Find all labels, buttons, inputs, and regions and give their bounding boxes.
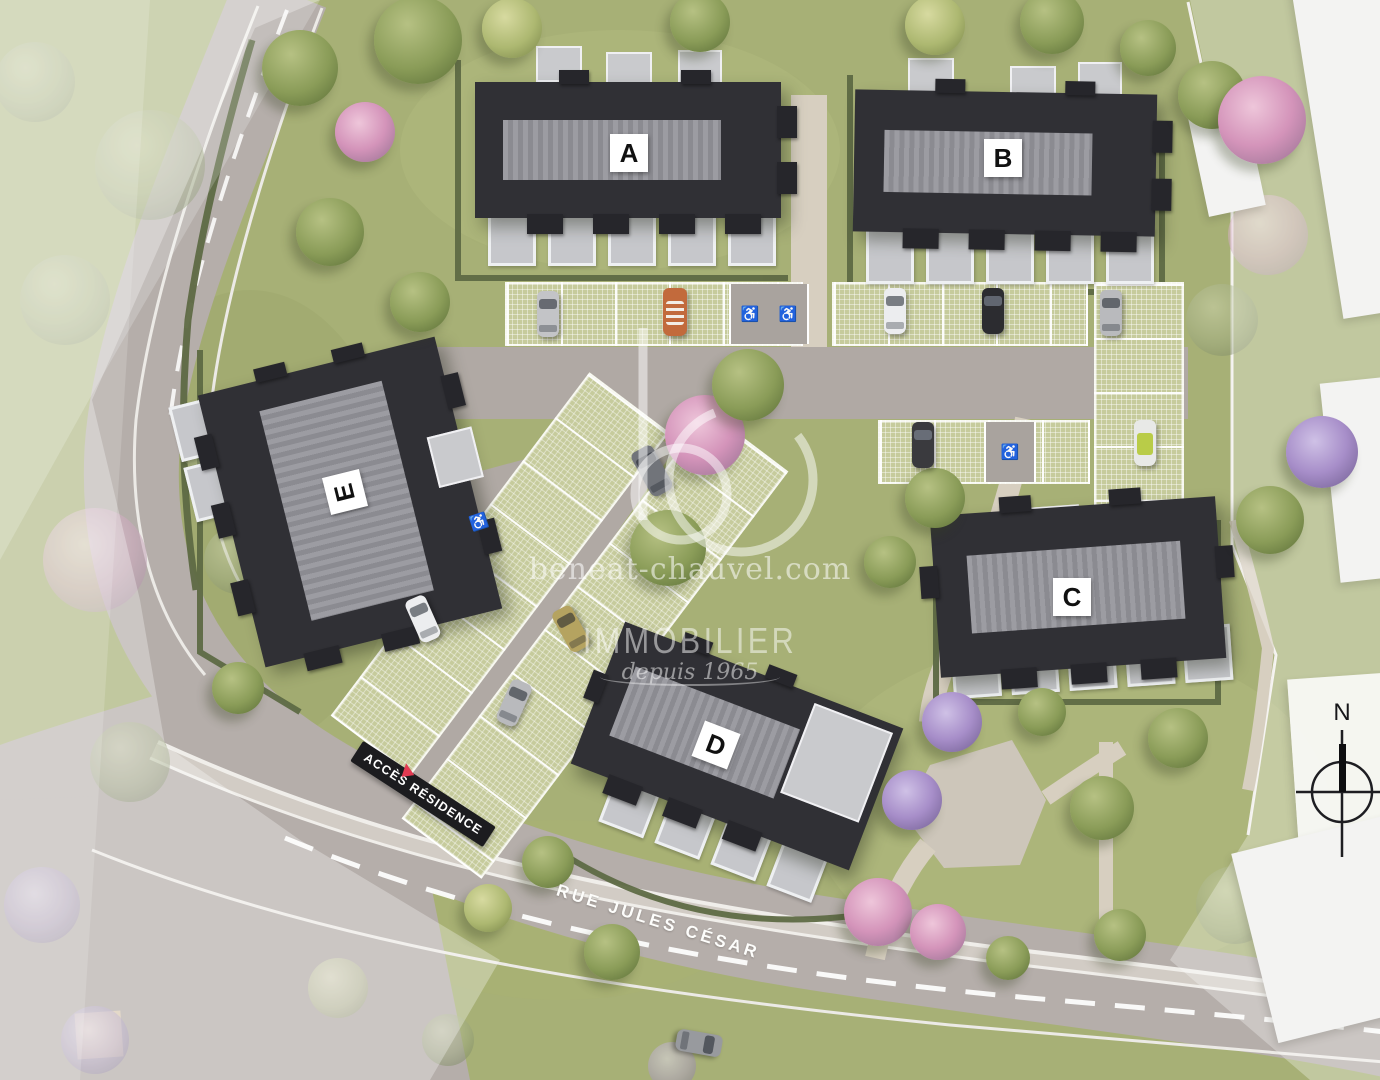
building-label-c[interactable]: C	[1053, 578, 1091, 616]
car	[982, 288, 1004, 334]
building-label-a[interactable]: A	[610, 134, 648, 172]
watermark-website: beneat-chauvel.com	[390, 552, 990, 587]
access-triangle-icon: ▲	[395, 757, 420, 782]
bc-logo	[565, 322, 825, 572]
car	[537, 291, 559, 337]
car	[884, 288, 906, 334]
site-plan-aerial-view: ♿ ♿ ♿ ♿	[0, 0, 1380, 1080]
compass-north-label: N	[1333, 699, 1350, 726]
building-label-b[interactable]: B	[984, 139, 1022, 177]
car	[1134, 420, 1156, 466]
watermark-swash	[600, 668, 780, 686]
building-letter: D	[702, 727, 731, 763]
building-letter: A	[620, 138, 639, 169]
watermark-brand: IMMOBILIER	[435, 620, 945, 662]
car	[495, 678, 534, 729]
car	[1100, 290, 1122, 336]
compass: N	[1296, 692, 1380, 867]
compass-north-needle	[1339, 744, 1346, 792]
building-letter: B	[994, 143, 1013, 174]
building-letter: E	[328, 480, 362, 504]
building-letter: C	[1063, 582, 1082, 613]
car	[912, 422, 934, 468]
car-on-road	[674, 1028, 723, 1058]
